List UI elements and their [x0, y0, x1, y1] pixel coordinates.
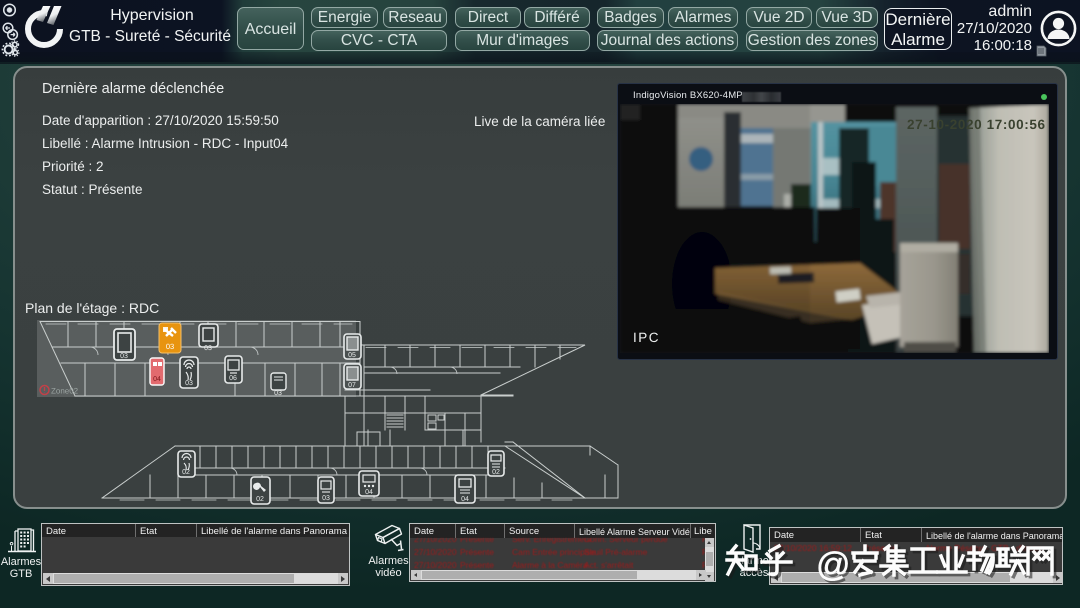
svg-text:27-10-2020 17:00:56: 27-10-2020 17:00:56 [907, 117, 1045, 132]
svg-text:03: 03 [120, 353, 128, 360]
svg-text:03: 03 [274, 390, 282, 397]
svg-text:03: 03 [204, 345, 212, 352]
svg-text:IPC: IPC [633, 330, 660, 345]
svg-text:02: 02 [182, 469, 190, 476]
svg-text:06: 06 [229, 375, 237, 382]
svg-text:04: 04 [153, 376, 161, 383]
svg-text:Zone02: Zone02 [51, 387, 79, 396]
svg-text:04: 04 [365, 489, 373, 496]
svg-text:03: 03 [322, 495, 330, 502]
svg-text:02: 02 [492, 469, 500, 476]
svg-text:04: 04 [461, 496, 469, 503]
svg-text:03: 03 [185, 380, 193, 387]
svg-text:07: 07 [348, 382, 356, 389]
svg-text:05: 05 [348, 352, 356, 359]
svg-text:03: 03 [166, 342, 174, 351]
svg-text:02: 02 [256, 496, 264, 503]
